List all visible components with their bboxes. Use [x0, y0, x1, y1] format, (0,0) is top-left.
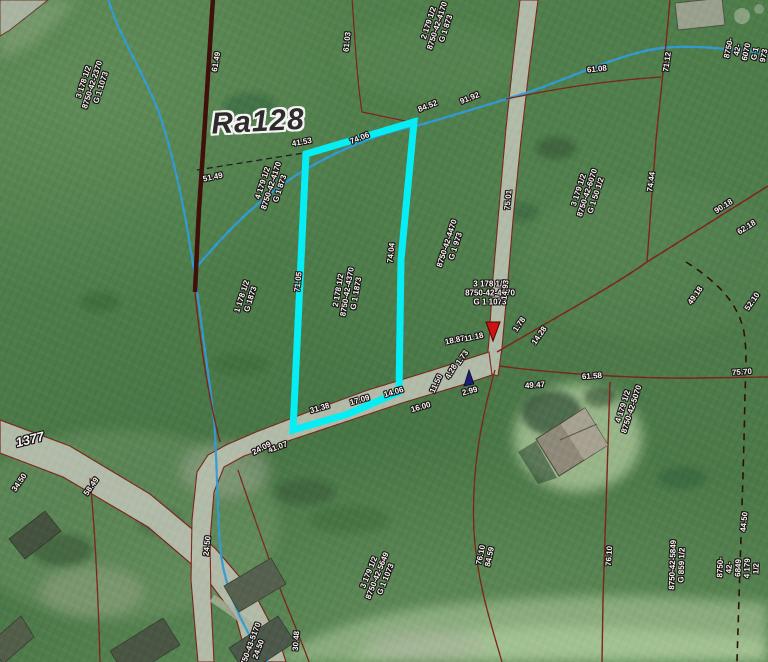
yard-feature: [734, 8, 750, 24]
highlighted-parcel-outline[interactable]: [293, 122, 414, 430]
building: [0, 616, 34, 662]
map-canvas[interactable]: Ra12813773 178 1/2 8750-42-2370 G 1 1073…: [0, 0, 768, 662]
building: [110, 618, 180, 662]
thick-boundary: [195, 0, 213, 292]
map-graphics: [0, 0, 768, 662]
terrain-patches: [0, 0, 768, 662]
yard-feature: [754, 4, 764, 14]
boundary: [506, 77, 661, 99]
building-topright: [675, 0, 725, 30]
boundary: [499, 366, 768, 378]
boundary-dashed: [197, 153, 304, 170]
